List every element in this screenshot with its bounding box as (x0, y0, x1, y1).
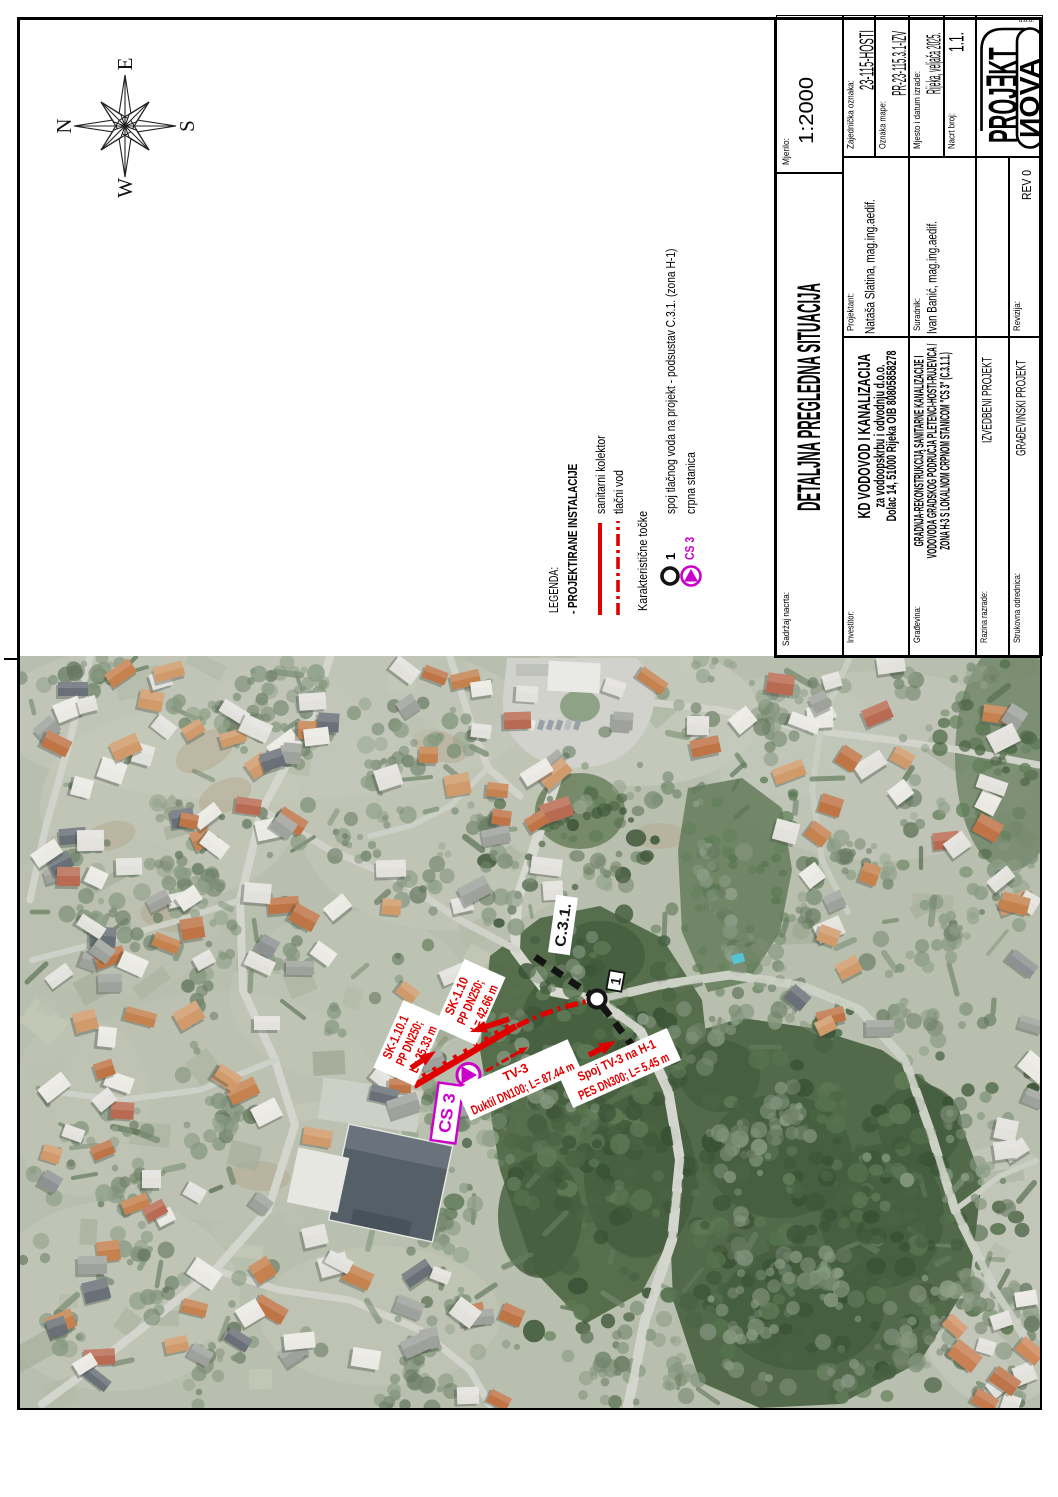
svg-text:Ivan Banić, mag.ing.aedif.: Ivan Banić, mag.ing.aedif. (923, 221, 939, 334)
svg-text:1:2000: 1:2000 (795, 77, 817, 144)
svg-text:Investitor:: Investitor: (845, 611, 855, 643)
svg-text:1.1.: 1.1. (945, 32, 968, 52)
svg-text:GRAĐEVINSKI PROJEKT: GRAĐEVINSKI PROJEKT (1014, 360, 1029, 456)
svg-text:Oznaka mape:: Oznaka mape: (877, 101, 887, 149)
svg-text:ИOVA: ИOVA (1013, 58, 1040, 138)
svg-text:ZONA H-3 S LOKALNOM CRPNOM STA: ZONA H-3 S LOKALNOM CRPNOM STANICOM "CS … (938, 352, 953, 550)
svg-text:Mjerilo:: Mjerilo: (780, 138, 790, 165)
svg-text:REV 0: REV 0 (1021, 170, 1034, 200)
svg-text:Razina razrade:: Razina razrade: (979, 591, 989, 643)
svg-text:IZVEDBENI PROJEKT: IZVEDBENI PROJEKT (980, 357, 994, 443)
svg-text:Dolac 14, 51000 Rijeka OIB 808: Dolac 14, 51000 Rijeka OIB 80805858278 (883, 350, 898, 521)
svg-text:Projektant:: Projektant: (845, 293, 856, 331)
svg-text:d.o.o.: d.o.o. (1019, 18, 1034, 24)
svg-text:Građevina:: Građevina: (911, 606, 922, 643)
svg-text:S: S (175, 120, 199, 132)
svg-text:PR-23-115.3.1-IZV: PR-23-115.3.1-IZV (888, 30, 910, 95)
svg-text:Revizija:: Revizija: (1011, 301, 1022, 331)
svg-text:DETALJNA PREGLEDNA SITUACIJA: DETALJNA PREGLEDNA SITUACIJA (792, 283, 827, 511)
svg-text:Sadržaj nacrta:: Sadržaj nacrta: (780, 592, 791, 646)
svg-text:Zajednička oznaka:: Zajednička oznaka: (845, 80, 856, 149)
svg-text:Mjesto i datum izrade:: Mjesto i datum izrade: (911, 71, 922, 149)
svg-text:Suradnik:: Suradnik: (911, 298, 922, 331)
svg-text:N: N (52, 118, 76, 133)
svg-text:Rijeka, veljača 2025.: Rijeka, veljača 2025. (924, 33, 945, 94)
svg-text:E: E (113, 58, 137, 71)
svg-text:Nataša Slatina, mag.ing.aedif.: Nataša Slatina, mag.ing.aedif. (862, 199, 878, 334)
svg-text:W: W (113, 178, 137, 198)
svg-text:Strukovna odrednica:: Strukovna odrednica: (1012, 573, 1022, 643)
svg-text:Nacrt broj:: Nacrt broj: (945, 113, 956, 149)
svg-text:23-115-HOSTI: 23-115-HOSTI (856, 30, 878, 90)
